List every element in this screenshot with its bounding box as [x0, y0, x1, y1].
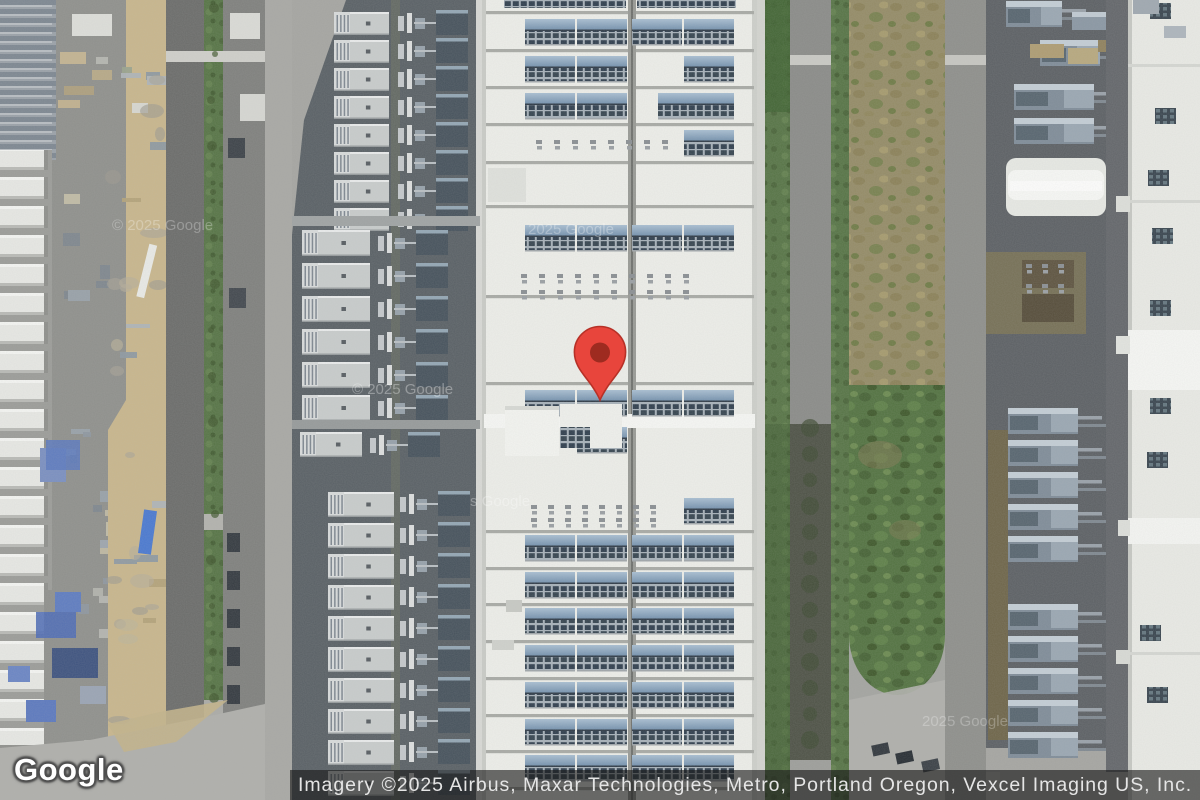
svg-text:s Google: s Google: [470, 493, 530, 510]
svg-text:© 2025 Google: © 2025 Google: [352, 381, 453, 398]
svg-text:2025 Google: 2025 Google: [922, 713, 1008, 730]
svg-text:2025 Google: 2025 Google: [528, 221, 614, 238]
svg-text:© 2025 Google: © 2025 Google: [112, 217, 213, 234]
